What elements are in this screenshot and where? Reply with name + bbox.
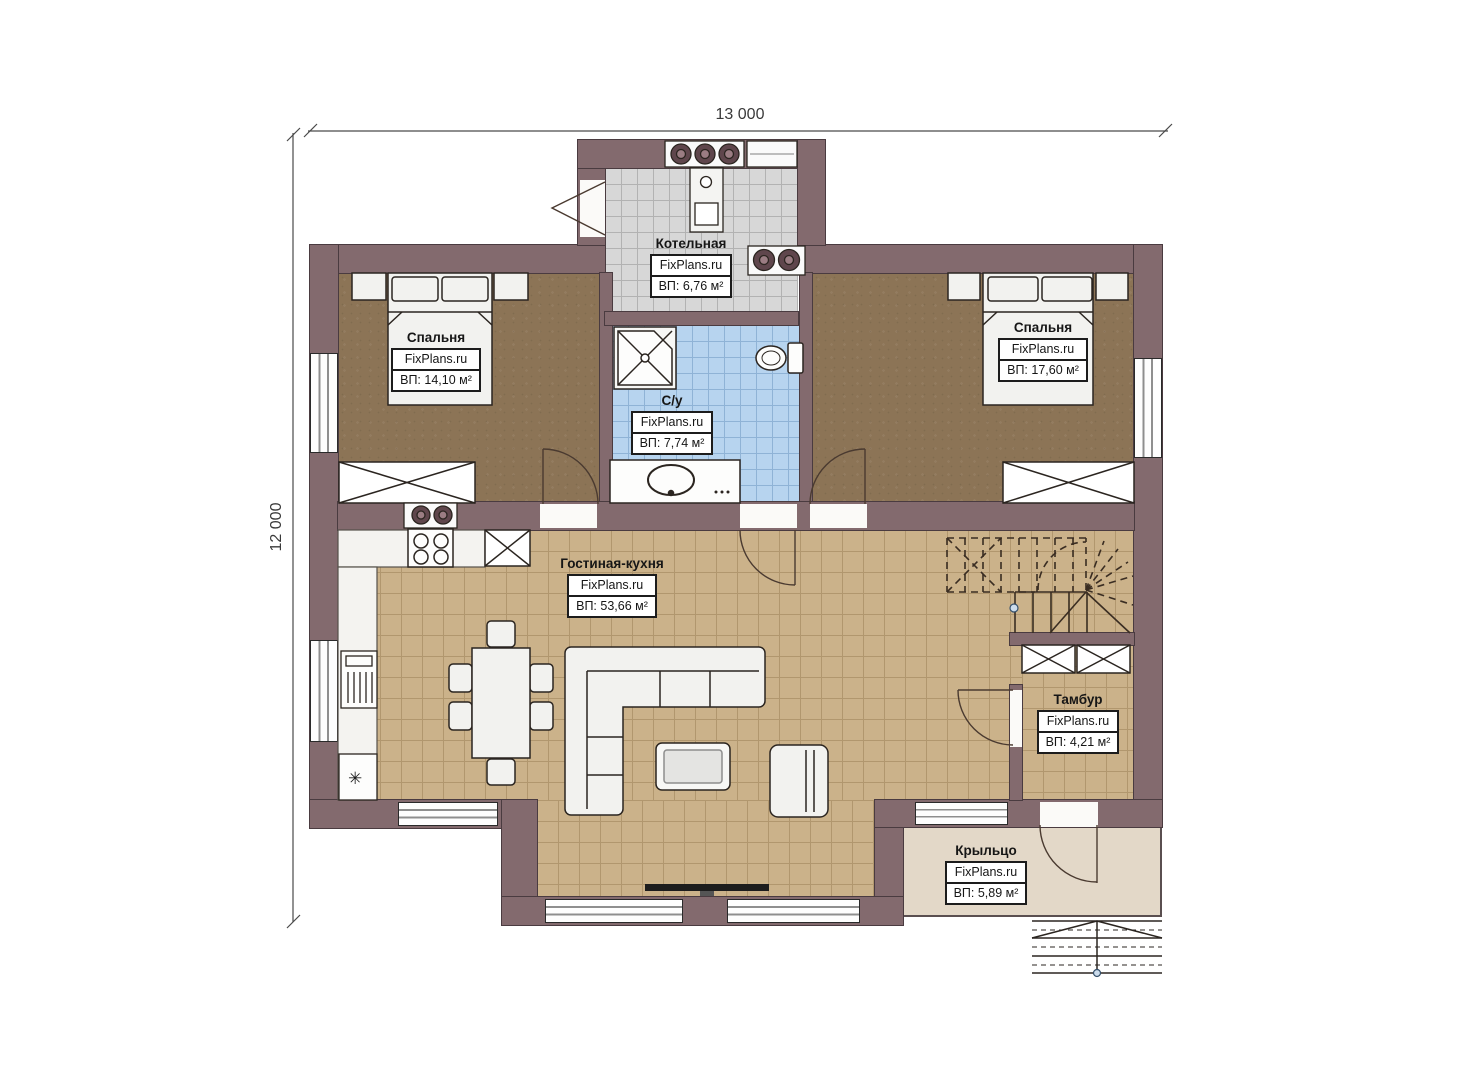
room-area: ВП: 14,10 м² (393, 369, 479, 390)
room-area: ВП: 6,76 м² (652, 275, 731, 296)
room-info-box: FixPlans.ru ВП: 4,21 м² (1037, 710, 1120, 754)
stove-symbol (408, 529, 453, 567)
tv-symbol (645, 884, 769, 896)
room-label-living: Гостиная-кухня FixPlans.ru ВП: 53,66 м² (548, 556, 676, 618)
room-info-box: FixPlans.ru ВП: 53,66 м² (567, 574, 657, 618)
brand-watermark: FixPlans.ru (1000, 340, 1086, 359)
room-info-box: FixPlans.ru ВП: 17,60 м² (998, 338, 1088, 382)
room-name: Гостиная-кухня (560, 556, 663, 571)
wardrobe-symbol-bedroom-right (1003, 462, 1134, 503)
dishwasher-symbol (341, 651, 377, 708)
room-label-bedroom-right: Спальня FixPlans.ru ВП: 17,60 м² (982, 320, 1104, 382)
brand-watermark: FixPlans.ru (569, 576, 655, 595)
room-name: С/у (661, 393, 682, 408)
room-label-bathroom: С/у FixPlans.ru ВП: 7,74 м² (612, 393, 732, 455)
sink-vanity-symbol (610, 460, 740, 503)
room-name: Спальня (1014, 320, 1072, 335)
room-info-box: FixPlans.ru ВП: 5,89 м² (945, 861, 1028, 905)
shower-symbol (614, 327, 676, 389)
hood-equipment-symbol (404, 503, 457, 528)
brand-watermark: FixPlans.ru (652, 256, 731, 275)
room-area: ВП: 7,74 м² (633, 432, 712, 453)
floor-plan-canvas: ✳ (0, 0, 1473, 1080)
brand-watermark: FixPlans.ru (947, 863, 1026, 882)
dimension-left-label: 12 000 (268, 496, 286, 558)
room-label-boiler: Котельная FixPlans.ru ВП: 6,76 м² (630, 236, 752, 298)
stairs-symbol (947, 538, 1133, 633)
coffee-table-symbol (656, 743, 730, 790)
dimension-top-label: 13 000 (695, 106, 785, 124)
room-label-tambour: Тамбур FixPlans.ru ВП: 4,21 м² (1018, 692, 1138, 754)
room-info-box: FixPlans.ru ВП: 7,74 м² (631, 411, 714, 455)
room-info-box: FixPlans.ru ВП: 6,76 м² (650, 254, 733, 298)
freezer-symbol: ✳ (339, 754, 377, 800)
toilet-symbol (756, 343, 803, 373)
armchair-symbol (770, 745, 828, 817)
wardrobe-symbol-tambour (1022, 645, 1130, 673)
room-name: Котельная (656, 236, 727, 251)
room-area: ВП: 5,89 м² (947, 882, 1026, 903)
brand-watermark: FixPlans.ru (393, 350, 479, 369)
fridge-symbol (485, 530, 530, 566)
room-area: ВП: 4,21 м² (1039, 731, 1118, 752)
dining-table-symbol (449, 621, 553, 785)
wardrobe-symbol-bedroom-left (339, 462, 475, 503)
room-label-bedroom-left: Спальня FixPlans.ru ВП: 14,10 м² (375, 330, 497, 392)
room-info-box: FixPlans.ru ВП: 14,10 м² (391, 348, 481, 392)
room-name: Тамбур (1054, 692, 1103, 707)
room-label-porch: Крыльцо FixPlans.ru ВП: 5,89 м² (920, 843, 1052, 905)
plan-symbols-layer: ✳ (0, 0, 1473, 1080)
brand-watermark: FixPlans.ru (1039, 712, 1118, 731)
room-area: ВП: 17,60 м² (1000, 359, 1086, 380)
freezer-icon: ✳ (348, 769, 362, 788)
brand-watermark: FixPlans.ru (633, 413, 712, 432)
porch-steps-symbol (1032, 921, 1162, 977)
room-name: Спальня (407, 330, 465, 345)
room-name: Крыльцо (955, 843, 1016, 858)
room-area: ВП: 53,66 м² (569, 595, 655, 616)
